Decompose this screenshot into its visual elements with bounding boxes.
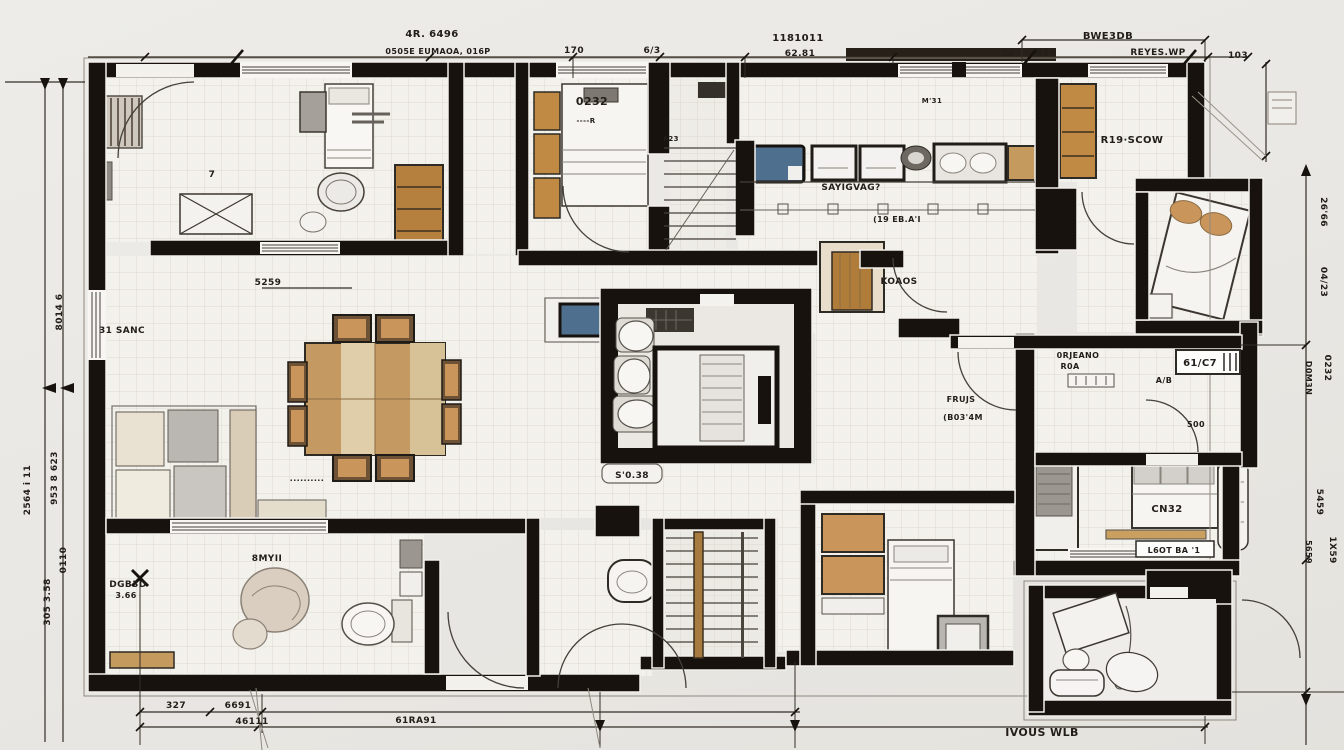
sofa-armrest [230,410,256,528]
wall [1028,585,1044,712]
toilet [1050,670,1104,696]
shelf [534,134,560,174]
burner [940,153,966,173]
pencil-line [588,688,600,748]
toilet [619,321,653,351]
wall [1035,188,1077,250]
floor-plan-canvas: 4R. 64960505E EUMAOA, 016P1706/311810116… [0,0,1344,750]
plan-label: 61RA91 [395,716,436,726]
floor-passage-right-grid [1077,182,1135,332]
door-gap [700,294,734,306]
sofa-cushion [168,410,218,462]
plan-label: 0505E EUMAOA, 016P [385,47,490,56]
plan-label: 46111 [235,717,268,727]
plan-label: 2564 i 11 [23,465,33,516]
plan-label: (B03'4M [943,413,983,422]
plan-label: 7 [209,170,216,180]
wall [652,518,776,530]
floor-hall-right-grid [815,333,1015,490]
plan-label: 26'66 [1318,197,1328,227]
plan-label: 31 SANC [99,326,145,336]
plan-label: 3.66 [115,591,136,600]
plan-label: 04/23 [1318,267,1328,297]
pencil-line [1198,92,1266,156]
clothes [1036,464,1072,516]
wall [1135,192,1149,320]
toilet [618,400,656,428]
wardrobe [1060,84,1096,178]
nightstand [300,92,326,132]
plan-label: 1181011 [772,33,824,44]
furniture [381,459,409,477]
window-mullion [952,62,966,77]
door-gap [1146,454,1198,465]
wall [424,560,440,674]
plan-label: R0A [1060,362,1080,371]
plan-label: 61/C7 [1183,358,1217,369]
wall [1187,62,1205,188]
plan-label: 5459 [1314,489,1324,516]
plan-label: IVOUS WLB [1005,726,1079,739]
plan-label: 0232 [1322,355,1332,382]
wall [652,518,664,668]
plan-label: ----R [576,117,595,125]
plan-label: KOAOS [880,277,917,287]
label-box [1068,374,1114,387]
wall [786,650,1014,666]
wall [1249,178,1263,336]
plan-label: 62.81 [785,49,815,59]
toilet-tank [392,600,412,642]
handrail [694,532,703,658]
plan-label: 420 [1036,48,1056,58]
door-gap [116,64,194,77]
fixture [400,540,422,568]
shelf [110,652,174,668]
armchair [822,556,884,594]
plan-label: 6/3 [643,46,660,56]
plan-label: 8014 6 [55,294,65,331]
side-table [1146,294,1172,318]
wall [526,518,540,676]
plan-label: FRUJS [947,395,976,404]
bed-pillow [1161,464,1187,484]
wall [595,505,640,537]
plan-label: 623 [663,135,679,143]
wall [88,62,106,692]
plan-label: DGB3D [109,580,146,590]
furniture [445,364,458,396]
plan-label: 8MYII [252,554,282,564]
arrow [1301,694,1311,706]
plan-label: 1X59 [1327,536,1337,563]
furniture [822,598,884,614]
arrow [42,383,56,393]
door-arc [1242,600,1300,658]
furniture [291,366,304,398]
arrow [790,720,800,732]
wall [764,518,776,668]
shelf [1106,530,1206,539]
handrail [741,532,744,658]
plan-label: CN32 [1151,504,1182,515]
wall [1035,452,1242,466]
plan-label: 170 [564,46,584,56]
sofa-cushion [174,466,226,522]
cabinet [1008,146,1036,180]
plan-label: 953 8 623 [50,451,60,505]
toilet [342,603,394,645]
appliance [812,146,856,180]
floor-plan-drawing: 4R. 64960505E EUMAOA, 016P1706/311810116… [0,0,1344,750]
plan-label: (19 EB.A'I [873,215,921,224]
bed-pillow [1134,464,1160,484]
plan-label: 4R. 6496 [405,29,458,40]
plan-label: R19·SCOW [1101,135,1164,146]
plan-label: 0110 [59,547,69,574]
wall [726,62,740,144]
plan-label: 2x [1002,49,1014,58]
plan-label: M'31 [922,97,942,105]
toilet [618,359,650,393]
plan-label: 5659 [1304,540,1313,564]
plan-label: 305 3.58 [43,578,53,625]
plan-label: 5259 [255,278,282,288]
bathtub [318,173,364,211]
plan-label: D0M3N [1304,361,1313,395]
fixture [400,572,422,596]
wall [860,250,904,268]
plan-label: 6691 [225,701,252,711]
arrow [58,78,68,90]
wall [1015,333,1035,576]
armchair [822,514,884,552]
plan-label: S'0.38 [615,471,649,481]
plan-label: 103 [1228,51,1248,61]
sideboard [258,500,326,518]
toilet [608,560,656,602]
burner [970,153,996,173]
door-gap [1150,587,1188,598]
furniture [291,410,304,442]
plan-label: ·········· [290,476,324,485]
plant [233,619,267,649]
appliance [860,146,904,180]
pot-lid [908,152,924,164]
floor-hall-center-grid [448,256,600,518]
furniture [338,319,366,338]
wall [800,490,816,666]
wall [88,674,640,692]
awning [846,48,1056,61]
towel-shelf [700,355,744,441]
plan-label: SAYIGVAG? [821,183,880,193]
plan-label: 327 [166,701,186,711]
shelf [534,178,560,218]
plan-label: REYES.WP [1130,48,1185,58]
plan-label: L6OT BA '1 [1148,546,1201,555]
wall [800,490,1015,504]
plan-label: 0RJEANO [1057,351,1100,360]
dresser [395,165,443,251]
plan-label: 0232 [576,95,608,108]
arrow [40,78,50,90]
wall [735,140,755,236]
arrow [60,383,74,393]
furniture [445,408,458,440]
wall [515,62,529,256]
plan-label: A/B [1156,376,1172,385]
floor-strip-grid [518,266,818,288]
arrow [1301,164,1311,176]
bed-pillow [329,88,369,104]
floor-stairwell-grid [664,530,764,656]
bed-pillow [894,546,948,562]
plan-label: BWE3DB [1083,31,1133,42]
wall [1028,700,1232,716]
wall [1222,455,1240,567]
shower-door [758,376,771,424]
plan-label: 500 [1187,420,1205,429]
door-gap [958,337,1014,348]
furniture [338,459,366,477]
furniture [381,319,409,338]
wall [448,62,464,256]
counter-notch [788,166,802,180]
sink [300,212,326,232]
window [88,290,106,360]
sofa-cushion [116,412,164,466]
floor-stairs-top-grid [670,78,726,254]
shelf [534,92,560,130]
sink [1063,649,1089,671]
wall [1135,178,1263,192]
wall [518,250,818,266]
